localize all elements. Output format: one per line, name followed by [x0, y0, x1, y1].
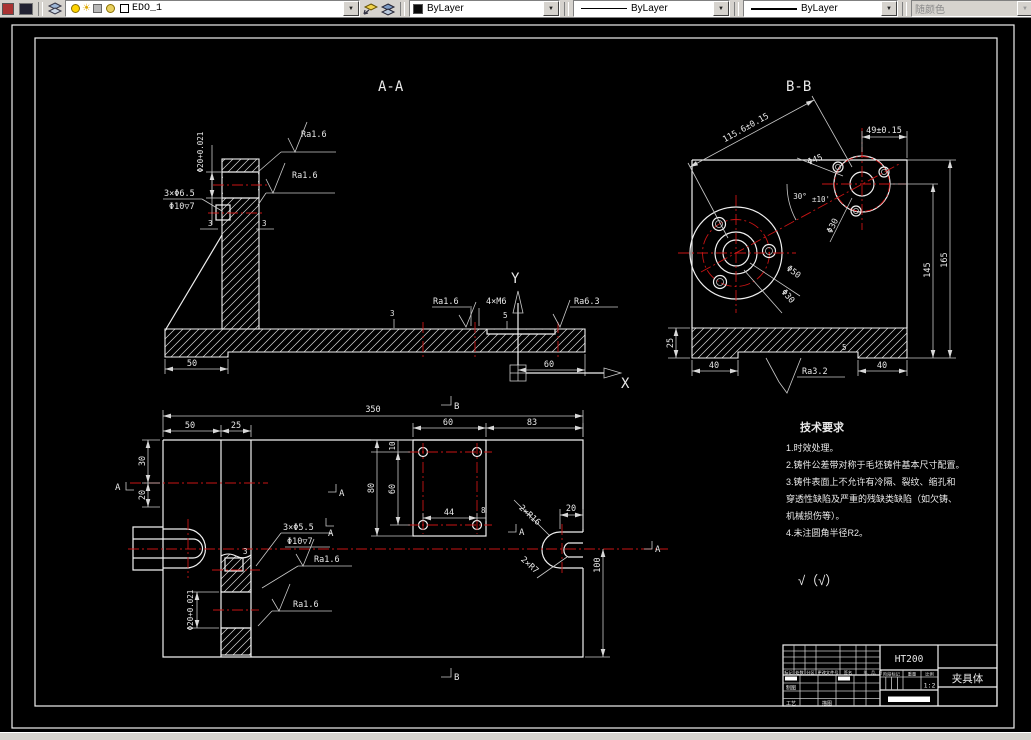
title-block: 标记 处数 分区 更改文件号 签名 年、月、日 制图 工艺 描图 HT200 阶…	[783, 645, 997, 707]
ra-1-plan: Ra1.6	[314, 555, 340, 565]
dia-30b-bb: Φ30	[825, 217, 841, 235]
plan-view: 350 50 25 30 20 60 83 10 60 80	[115, 396, 668, 683]
svg-text:A: A	[655, 545, 661, 555]
separator	[902, 2, 907, 16]
tech-req-line: 1.时效处理。	[786, 442, 839, 453]
plotstyle-control: 随颜色 ▼	[911, 0, 1031, 17]
dim-25-plan: 25	[231, 421, 241, 431]
linetype-value: ByLayer	[631, 3, 668, 14]
axis-y-label: Y	[511, 271, 520, 287]
holes-callout-aa: 3×Φ6.5	[164, 189, 195, 199]
scale-label: 比例	[925, 671, 933, 678]
drawing-number-bar	[888, 697, 930, 703]
sig-label-process: 工艺	[786, 701, 796, 707]
dim-80: 80	[367, 483, 377, 493]
dim-bore-aa: Φ20+0.021	[196, 132, 205, 173]
tech-req-title: 技术要求	[800, 420, 845, 434]
dim-20-plan: 20	[138, 490, 148, 500]
rev-header: 更改文件号	[818, 669, 839, 676]
separator	[38, 2, 43, 16]
stage-label: 阶段标记	[883, 671, 901, 678]
section-view-bb: B-B 115.6±0.15 49±0.15	[666, 79, 956, 393]
dim-50-aa: 50	[187, 359, 197, 369]
drawing-canvas[interactable]: A-A Φ20+0.021 3×Φ6.5 Φ10▽7 3	[0, 0, 1031, 740]
app-icon[interactable]	[0, 2, 16, 16]
dim-44: 44	[444, 508, 454, 518]
svg-text:B: B	[454, 402, 459, 412]
layer-lock-icon[interactable]	[93, 4, 102, 13]
plotstyle-value: 随颜色	[915, 1, 945, 16]
layer-plot-icon[interactable]	[106, 4, 115, 13]
separator	[734, 2, 739, 16]
material-label: HT200	[895, 654, 924, 665]
dim-5-aa: 5	[503, 311, 508, 320]
sheet-frame	[12, 25, 1014, 728]
dim-8: 8	[481, 506, 486, 515]
sig-label-trace: 描图	[822, 700, 832, 707]
make-layer-current-icon[interactable]	[362, 2, 378, 16]
angle-tol-bb: ±10'	[812, 195, 830, 204]
tech-req-line: 穿透性缺陷及严重的残缺类缺陷（如欠铸、	[786, 493, 957, 504]
dim-60-top: 60	[443, 418, 453, 428]
dia-45-bb: Φ45	[806, 153, 824, 168]
part-name: 夹具体	[952, 672, 984, 685]
dim-3b: 3	[262, 219, 267, 228]
section-view-aa: A-A Φ20+0.021 3×Φ6.5 Φ10▽7 3	[163, 79, 630, 392]
tech-req-line: 4.未注圆角半径R2。	[786, 527, 868, 538]
dim-3a: 3	[208, 219, 213, 228]
r7-label: 2×R7	[518, 555, 540, 576]
scale-value: 1:2	[924, 682, 936, 690]
dim-centers-bb: 115.6±0.15	[721, 111, 771, 145]
linetype-control[interactable]: ByLayer ▼	[573, 0, 730, 17]
tech-req-line: 2.铸件公差带对称于毛坯铸件基本尺寸配置。	[786, 459, 965, 470]
dim-145-bb: 145	[923, 262, 933, 277]
color-dropdown-arrow[interactable]: ▼	[543, 1, 559, 16]
bore-dim-plan: Φ20+0.021	[186, 590, 195, 631]
layer-on-icon[interactable]	[71, 4, 80, 13]
dim-30-plan: 30	[138, 456, 148, 466]
status-bar	[0, 732, 1031, 740]
color-swatch	[413, 4, 423, 14]
rev-header: 分区	[806, 669, 814, 676]
dim-60-left: 60	[388, 484, 398, 494]
svg-text:A: A	[115, 483, 121, 493]
ra-bottom-bb: Ra3.2	[802, 367, 828, 377]
view-title-bb: B-B	[786, 79, 811, 95]
view-title-aa: A-A	[378, 79, 404, 95]
dim-40r-bb: 40	[877, 361, 887, 371]
dim-50-plan: 50	[185, 421, 195, 431]
color-value: ByLayer	[427, 3, 464, 14]
thread-label-aa: 4×M6	[486, 297, 506, 307]
rev-header: 标记	[784, 669, 793, 676]
surface-finish-note: √（√）	[798, 573, 838, 588]
weight-label: 重量	[908, 671, 916, 678]
ra-2-plan: Ra1.6	[293, 600, 319, 610]
ra-top-aa: Ra1.6	[301, 130, 327, 140]
lineweight-value: ByLayer	[801, 3, 838, 14]
axis-x-label: X	[621, 376, 630, 392]
dim-49-bb: 49±0.15	[866, 126, 902, 136]
dim-25-bb: 25	[666, 338, 676, 348]
dim-20-slot: 20	[566, 504, 576, 514]
tech-req-line: 3.铸件表面上不允许有冷隔、裂纹、缩孔和	[786, 476, 956, 487]
tech-req-line: 机械损伤等）。	[786, 510, 845, 521]
lineweight-control[interactable]: ByLayer ▼	[743, 0, 898, 17]
separator	[564, 2, 569, 16]
linetype-dropdown-arrow[interactable]: ▼	[713, 1, 729, 16]
dim-40l-bb: 40	[709, 361, 719, 371]
dia-50-bb: Φ50	[784, 264, 802, 281]
ra-mid-aa: Ra1.6	[292, 171, 318, 181]
layer-color-swatch[interactable]	[120, 4, 129, 13]
linetype-sample	[581, 8, 627, 9]
tool-icon[interactable]	[18, 2, 34, 16]
dim-83: 83	[527, 418, 537, 428]
ra-base-aa: Ra1.6	[433, 297, 459, 307]
layer-dropdown-arrow[interactable]: ▼	[343, 1, 359, 16]
layer-freeze-icon[interactable]: ☀	[82, 4, 91, 14]
svg-text:A: A	[339, 489, 345, 499]
layer-manager-icon[interactable]	[47, 2, 63, 16]
rev-header: 签名	[844, 669, 852, 676]
sig-label-draw: 制图	[786, 685, 796, 692]
svg-text:B: B	[454, 673, 459, 683]
cbore-callout-aa: Φ10▽7	[169, 202, 195, 212]
lineweight-dropdown-arrow[interactable]: ▼	[881, 1, 897, 16]
dim-60-aa: 60	[544, 360, 554, 370]
dim-3-plan: 3	[243, 547, 248, 556]
dim-100: 100	[593, 557, 603, 572]
dim-350: 350	[365, 405, 380, 415]
lineweight-sample	[751, 8, 797, 10]
holes-callout-plan: 3×Φ5.5	[283, 523, 314, 533]
separator	[400, 2, 405, 16]
color-control[interactable]: ByLayer ▼	[409, 0, 560, 17]
dim-3c: 3	[390, 309, 395, 318]
layer-previous-icon[interactable]	[380, 2, 396, 16]
r16-label: 2×R16	[516, 503, 542, 528]
angle-30-bb: 30°	[793, 192, 807, 201]
layer-dropdown[interactable]: ☀ EDO_1 ▼	[65, 0, 360, 17]
rev-header: 处数	[795, 669, 804, 676]
ra-right-aa: Ra6.3	[574, 297, 600, 307]
svg-text:A: A	[519, 528, 525, 538]
technical-requirements: 技术要求 1.时效处理。 2.铸件公差带对称于毛坯铸件基本尺寸配置。 3.铸件表…	[786, 420, 965, 588]
layer-name: EDO_1	[132, 3, 162, 14]
dim-10: 10	[388, 441, 397, 451]
plotstyle-dropdown-arrow: ▼	[1017, 1, 1031, 16]
rev-header: 年、月、日	[864, 670, 883, 675]
svg-text:A: A	[328, 529, 334, 539]
dim-165-bb: 165	[940, 252, 950, 267]
top-toolbar: ☀ EDO_1 ▼ ByLayer ▼ ByLayer ▼ ByLayer ▼ …	[0, 0, 1031, 18]
dim-5-bb: 5	[842, 343, 847, 352]
dia-30a-bb: Φ30	[779, 288, 797, 306]
cbore-callout-plan: Φ10▽7	[287, 537, 313, 547]
